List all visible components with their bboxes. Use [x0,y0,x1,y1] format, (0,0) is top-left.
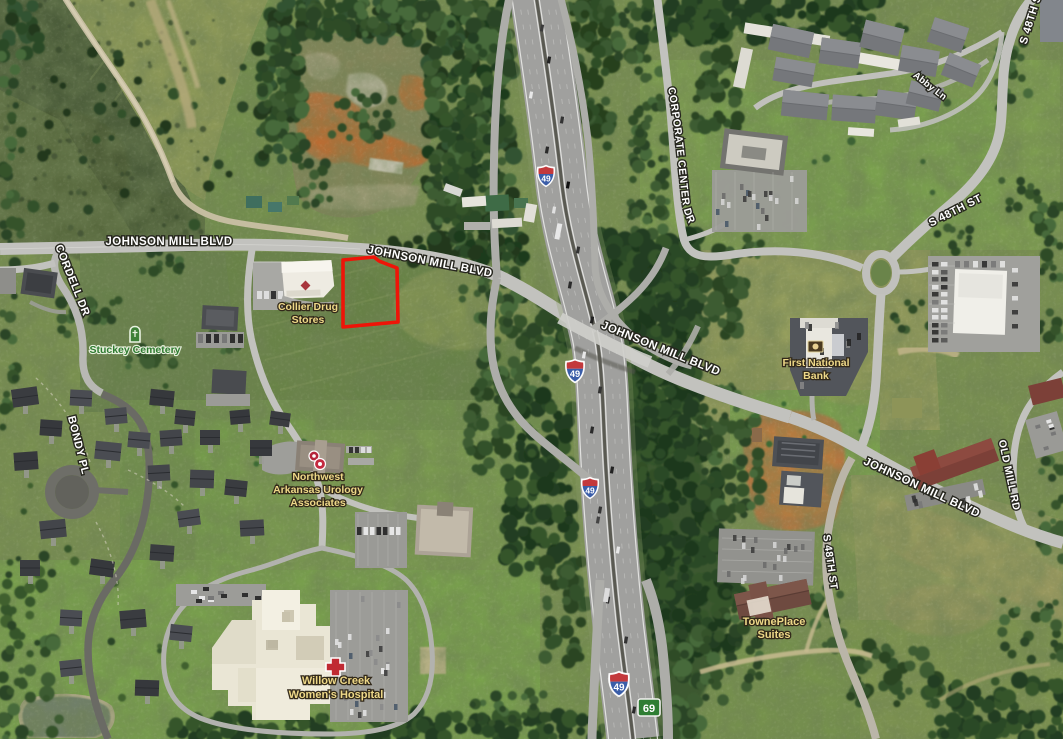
svg-text:Women's Hospital: Women's Hospital [289,689,384,701]
svg-text:49: 49 [541,174,551,184]
svg-text:Arkansas Urology: Arkansas Urology [273,484,363,496]
svg-text:Collier Drug: Collier Drug [278,301,338,313]
svg-text:Suites: Suites [757,629,790,641]
svg-text:69: 69 [643,703,655,715]
svg-text:JOHNSON MILL BLVD: JOHNSON MILL BLVD [105,236,232,248]
svg-text:Stores: Stores [292,314,325,326]
svg-text:TownePlace: TownePlace [743,616,806,628]
svg-text:Stuckey Cemetery: Stuckey Cemetery [89,344,180,356]
svg-text:49: 49 [613,683,625,694]
svg-text:Northwest: Northwest [292,471,344,483]
svg-text:49: 49 [570,369,580,379]
svg-text:Willow Creek: Willow Creek [302,675,371,687]
svg-text:49: 49 [585,486,595,496]
svg-text:Bank: Bank [803,370,829,382]
svg-text:First National: First National [782,357,849,369]
svg-text:Associates: Associates [290,497,346,509]
